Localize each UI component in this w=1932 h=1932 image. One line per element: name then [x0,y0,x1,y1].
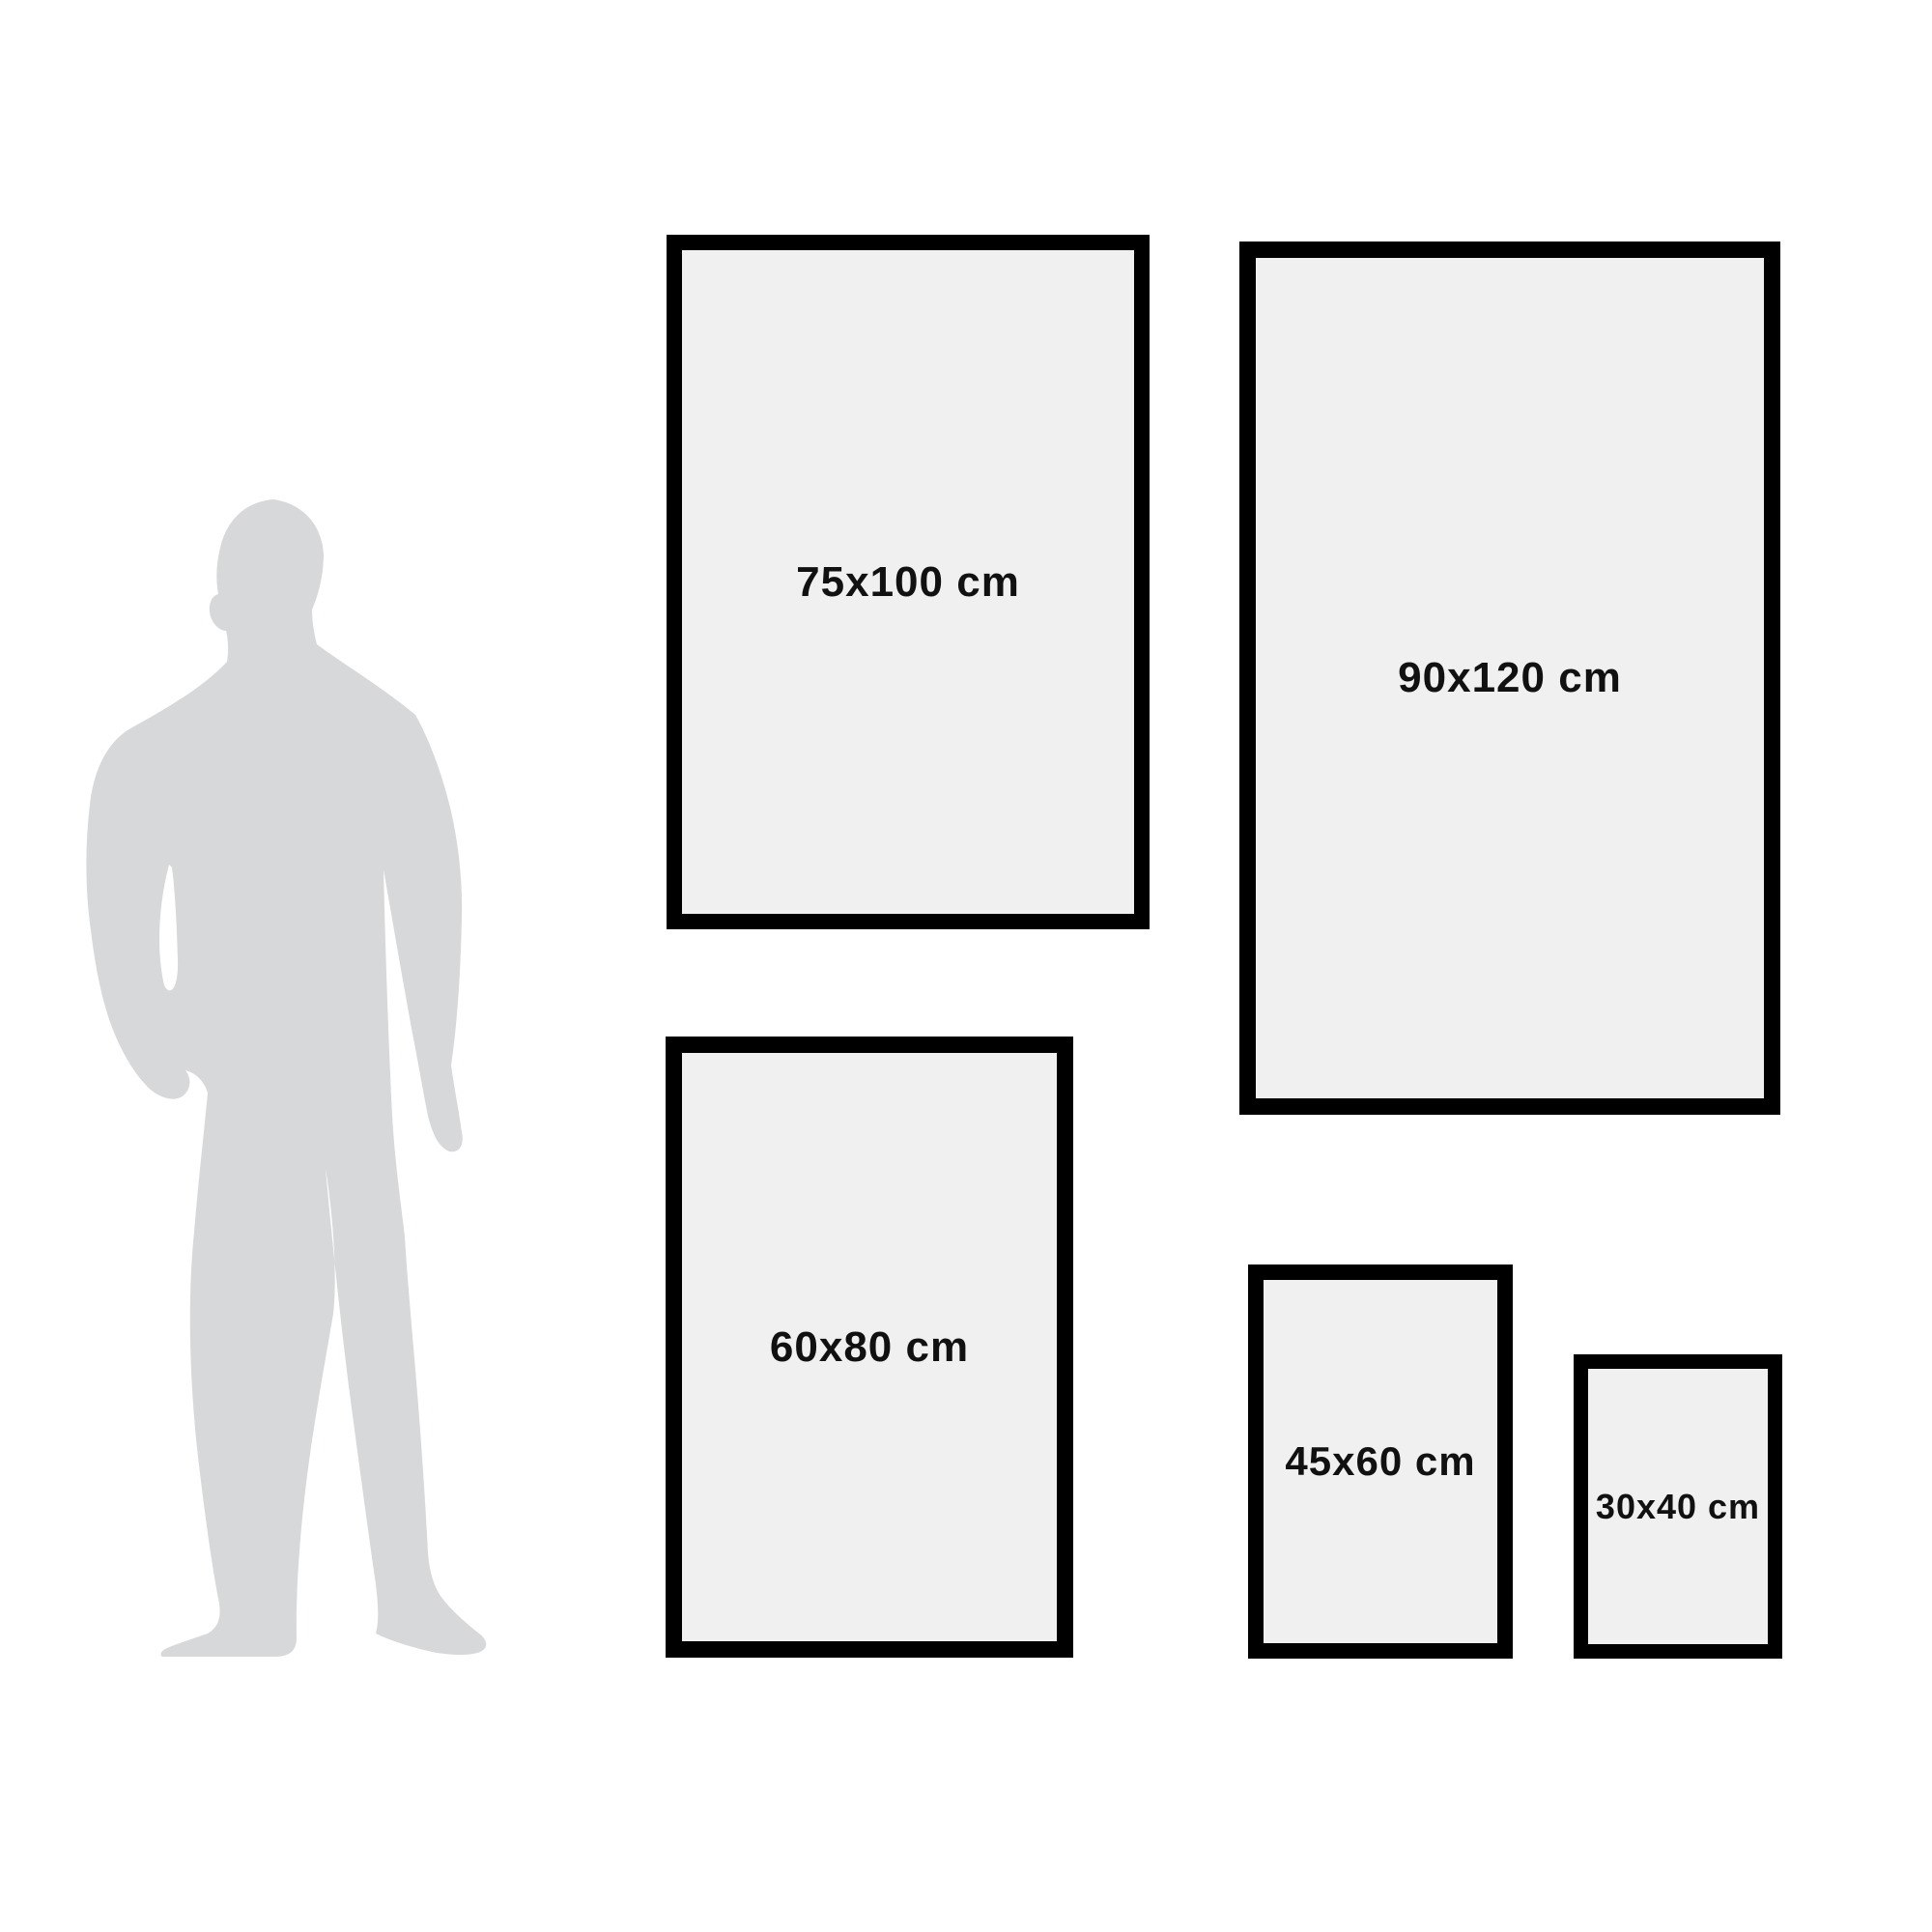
size-label-45x60: 45x60 cm [1285,1438,1475,1485]
size-guide-diagram: 75x100 cm 90x120 cm 60x80 cm 45x60 cm 30… [0,0,1932,1932]
size-frame-75x100: 75x100 cm [667,235,1150,929]
size-label-60x80: 60x80 cm [770,1323,969,1372]
size-frame-60x80: 60x80 cm [666,1037,1073,1658]
size-frame-30x40: 30x40 cm [1574,1354,1782,1659]
size-label-30x40: 30x40 cm [1596,1487,1760,1527]
size-label-90x120: 90x120 cm [1398,654,1622,702]
size-frame-90x120: 90x120 cm [1239,241,1780,1115]
size-label-75x100: 75x100 cm [796,558,1020,607]
man-silhouette-icon [82,497,507,1657]
size-frame-45x60: 45x60 cm [1248,1264,1513,1659]
